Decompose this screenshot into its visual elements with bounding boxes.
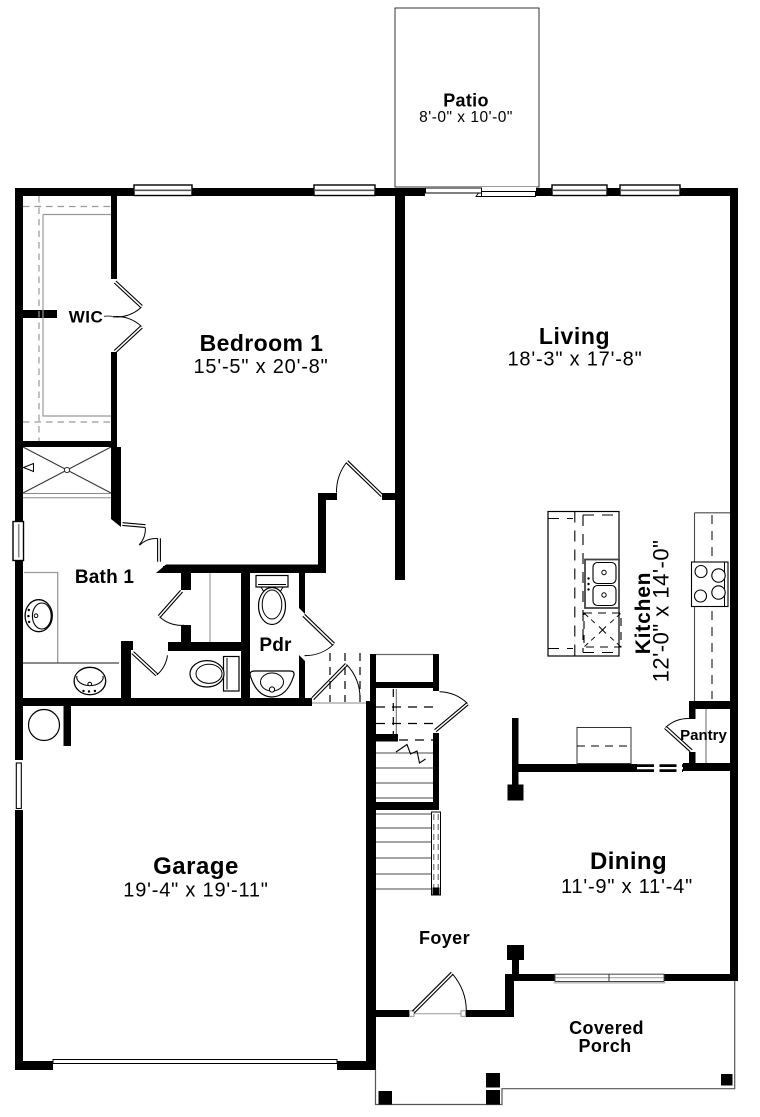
svg-text:Patio: Patio [443,91,489,111]
svg-text:Bedroom 1: Bedroom 1 [200,330,324,356]
svg-text:19'-4" x 19'-11": 19'-4" x 19'-11" [123,880,268,902]
svg-text:Covered: Covered [569,1018,644,1038]
svg-text:Foyer: Foyer [419,928,470,948]
svg-text:WIC: WIC [69,308,104,327]
svg-text:12'-0" x 14'-0": 12'-0" x 14'-0" [649,540,674,683]
svg-text:Pdr: Pdr [259,635,292,656]
svg-text:8'-0" x 10'-0": 8'-0" x 10'-0" [419,109,513,126]
svg-text:15'-5" x 20'-8": 15'-5" x 20'-8" [193,356,328,378]
svg-text:Living: Living [539,323,610,349]
svg-text:Dining: Dining [590,848,667,875]
svg-text:11'-9" x 11'-4": 11'-9" x 11'-4" [561,876,693,898]
svg-text:18'-3" x 17'-8": 18'-3" x 17'-8" [507,349,642,371]
svg-text:Pantry: Pantry [680,727,727,744]
svg-text:Porch: Porch [578,1036,631,1056]
svg-text:Garage: Garage [153,853,239,880]
svg-text:Bath 1: Bath 1 [75,567,134,588]
